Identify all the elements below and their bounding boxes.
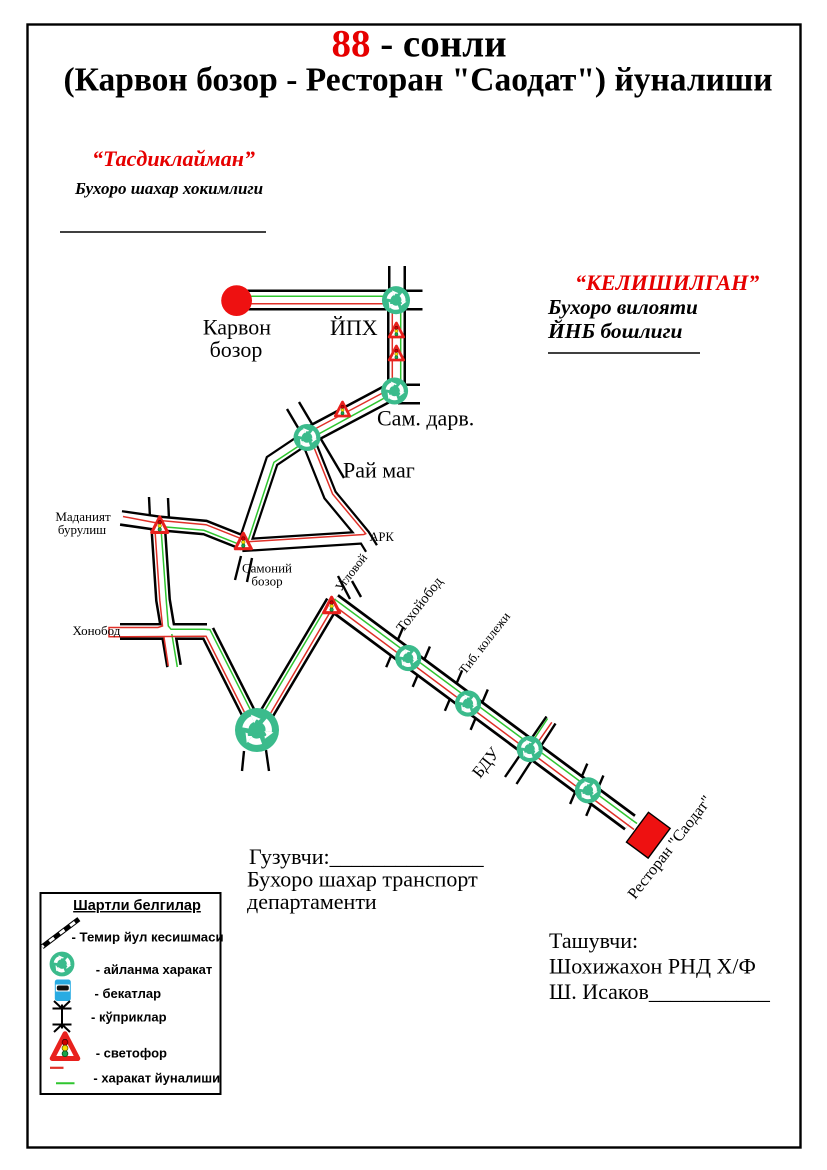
svg-text:ЙПХ: ЙПХ xyxy=(330,315,378,340)
svg-text:“Тасдиклайман”: “Тасдиклайман” xyxy=(92,146,255,171)
svg-text:Бухоро вилояти: Бухоро вилояти xyxy=(547,295,698,319)
svg-text:Шохижахон РНД Х/Ф: Шохижахон РНД Х/Ф xyxy=(549,954,756,979)
svg-text:бозор: бозор xyxy=(251,574,282,589)
svg-text:Бухоро шахар транспорт: Бухоро шахар транспорт xyxy=(247,867,478,892)
svg-text:АРК: АРК xyxy=(370,530,395,544)
svg-text:Карвон: Карвон xyxy=(203,315,271,340)
svg-text:Гузувчи:______________: Гузувчи:______________ xyxy=(249,844,485,869)
svg-text:- айланма харакат: - айланма харакат xyxy=(96,962,213,977)
svg-text:Ташувчи:: Ташувчи: xyxy=(549,928,638,953)
svg-text:департаменти: департаменти xyxy=(247,889,377,914)
svg-text:(Карвон бозор - Ресторан "Саод: (Карвон бозор - Ресторан "Саодат") йунал… xyxy=(63,62,772,99)
svg-text:бурулиш: бурулиш xyxy=(58,522,106,537)
svg-text:ЙНБ бошлиги: ЙНБ бошлиги xyxy=(547,319,683,343)
svg-text:Хонобод: Хонобод xyxy=(73,623,121,638)
svg-text:88 - сонли: 88 - сонли xyxy=(331,23,506,66)
svg-text:- бекатлар: - бекатлар xyxy=(95,986,162,1001)
svg-text:Ш. Исаков___________: Ш. Исаков___________ xyxy=(549,979,771,1004)
svg-text:- светофор: - светофор xyxy=(96,1046,167,1061)
svg-text:- харакат йуналиши: - харакат йуналиши xyxy=(93,1071,220,1086)
svg-text:Шартли белгилар: Шартли белгилар xyxy=(73,898,201,914)
svg-text:Бухоро шахар хокимлиги: Бухоро шахар хокимлиги xyxy=(74,179,263,198)
svg-text:бозор: бозор xyxy=(210,337,263,362)
svg-text:Сам. дарв.: Сам. дарв. xyxy=(377,406,474,431)
svg-text:Рай маг: Рай маг xyxy=(343,458,415,483)
svg-text:“КЕЛИШИЛГАН”: “КЕЛИШИЛГАН” xyxy=(575,270,759,295)
svg-text:- Темир йул кесишмаси: - Темир йул кесишмаси xyxy=(72,930,224,945)
svg-text:- кўприклар: - кўприклар xyxy=(91,1010,167,1025)
